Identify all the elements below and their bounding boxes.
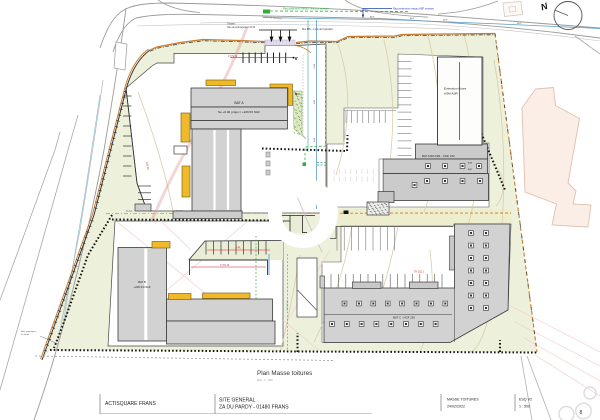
svg-text:TELECOM: TELECOM — [285, 300, 287, 311]
svg-text:BAT A: BAT A — [234, 101, 244, 105]
svg-text:ASM: ASM — [468, 162, 473, 165]
svg-text:ZA DU PARDY - 01480 FRANS: ZA DU PARDY - 01480 FRANS — [219, 405, 289, 411]
svg-text:17 PL St: 17 PL St — [228, 55, 237, 58]
svg-text:1 : 500: 1 : 500 — [519, 405, 530, 409]
svg-text:BUES: BUES — [126, 210, 133, 213]
svg-text:8 PL: 8 PL — [236, 247, 242, 250]
svg-text:Ne +0.00 projet = +229.50 NG: Ne +0.00 projet = +229.50 NGF — [218, 110, 260, 114]
svg-text:AEP: AEP — [313, 138, 316, 143]
svg-text:BAT ASM ASR – NGF 232: BAT ASM ASR – NGF 232 — [422, 154, 455, 158]
svg-text:AEP: AEP — [410, 17, 415, 20]
svg-text:24/02/2022: 24/02/2022 — [447, 405, 465, 409]
svg-text:Travaux: Travaux — [227, 23, 236, 26]
svg-text:AEP: AEP — [443, 18, 448, 21]
svg-text:ASM ASR: ASM ASR — [444, 92, 459, 96]
svg-text:TN 232.1: TN 232.1 — [414, 271, 425, 274]
svg-text:AEP: AEP — [517, 22, 522, 25]
svg-text:Rue BHL, 1 voie de l'opération: Rue BHL, 1 voie de l'opération — [302, 28, 334, 31]
svg-text:BAT C - NGF 230: BAT C - NGF 230 — [393, 316, 415, 320]
svg-text:MASSE TOITURES: MASSE TOITURES — [447, 398, 479, 402]
svg-text:ACTISQUARE FRANS: ACTISQUARE FRANS — [105, 401, 157, 407]
svg-text:ASR: ASR — [468, 168, 473, 171]
svg-text:AEP: AEP — [370, 16, 375, 19]
svg-text:AEP: AEP — [313, 100, 316, 105]
svg-text:Haie paysagère: Haie paysagère — [21, 330, 37, 333]
svg-text:Extension future: Extension future — [444, 87, 467, 91]
svg-text:17 PL St: 17 PL St — [220, 264, 229, 267]
svg-text:Raccordement réseau AEP exista: Raccordement réseau AEP existant — [393, 7, 434, 11]
svg-text:Voie de prolongement 12 M: Voie de prolongement 12 M — [227, 26, 255, 29]
svg-text:ESQ V2: ESQ V2 — [519, 398, 532, 402]
svg-text:SITE GENERAL: SITE GENERAL — [219, 398, 256, 404]
svg-text:en limite: en limite — [21, 333, 30, 336]
svg-text:8: 8 — [580, 410, 583, 416]
svg-text:Raccordement réseau Télécom ex: Raccordement réseau Télécom existant — [283, 7, 329, 11]
svg-text:AEP: AEP — [313, 64, 316, 69]
svg-text:BAT B: BAT B — [138, 280, 146, 284]
svg-text:Ech : 1 : 500: Ech : 1 : 500 — [257, 378, 273, 382]
svg-text:+229.33 NGF: +229.33 NGF — [134, 285, 151, 289]
svg-text:Plan Masse toitures: Plan Masse toitures — [257, 370, 312, 377]
